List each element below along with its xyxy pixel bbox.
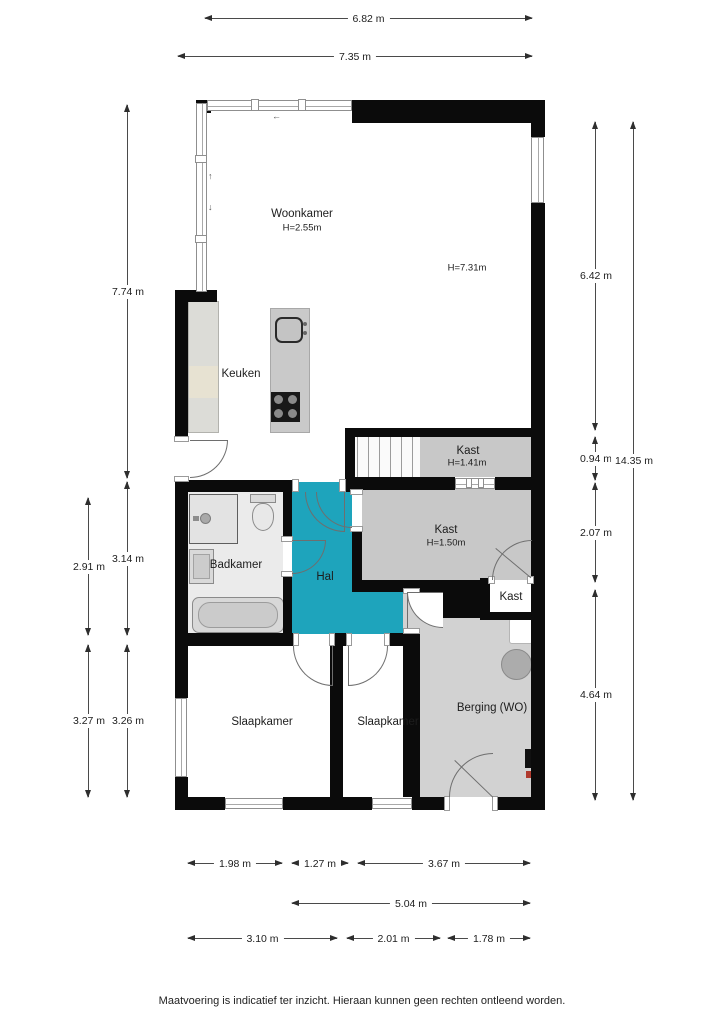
- wall-segment: [175, 478, 188, 698]
- window-frame-mark: [466, 478, 472, 488]
- dim-right-642: 6.42 m: [595, 122, 596, 430]
- door-leaf: [292, 540, 326, 541]
- dim-left-327: 3.27 m: [88, 645, 89, 797]
- ceiling-height-kast-stair: H=1.41m: [448, 458, 487, 469]
- island-sink: [275, 317, 303, 343]
- dim-label: 2.07 m: [576, 526, 616, 540]
- window-frame-mark: [251, 99, 259, 111]
- wall-segment: [352, 100, 545, 123]
- dim-label: 14.35 m: [611, 454, 657, 468]
- dim-label: 3.26 m: [108, 714, 148, 728]
- stair-step: [401, 437, 402, 477]
- dim-label: 7.35 m: [334, 51, 376, 63]
- window: [175, 698, 187, 777]
- dim-label: 5.04 m: [390, 898, 432, 910]
- dim-bottom-127: 1.27 m: [292, 863, 348, 864]
- dim-label: 1.98 m: [214, 858, 256, 870]
- dim-right-1435: 14.35 m: [633, 122, 634, 800]
- dim-label: 3.14 m: [108, 552, 148, 566]
- dim-bottom-198: 1.98 m: [188, 863, 282, 864]
- dim-top-inner: 6.82 m: [205, 18, 532, 19]
- window: [196, 103, 207, 292]
- bathtub-basin: [198, 602, 278, 628]
- window: [207, 100, 352, 111]
- stair-step: [412, 437, 413, 477]
- hal-floor-lower: [290, 590, 403, 637]
- wall-segment: [175, 797, 225, 810]
- wall-segment: [412, 797, 448, 810]
- dim-right-464: 4.64 m: [595, 590, 596, 800]
- wall-segment: [283, 492, 292, 540]
- island-faucet-dot: [303, 331, 307, 335]
- window-frame-mark: [195, 235, 207, 243]
- dim-right-094: 0.94 m: [595, 437, 596, 480]
- room-label-slaapkamer-left: Slaapkamer: [231, 716, 292, 728]
- dim-label: 3.27 m: [69, 714, 109, 728]
- dim-label: 7.74 m: [108, 285, 148, 299]
- dim-left-314: 3.14 m: [127, 482, 128, 635]
- window-frame-mark: [298, 99, 306, 111]
- wall-segment: [175, 633, 295, 646]
- interior-window: [455, 478, 495, 489]
- dim-bottom-367: 3.67 m: [358, 863, 530, 864]
- door-opening: [348, 634, 388, 646]
- room-label-berging: Berging (WO): [457, 702, 527, 714]
- door-jamb: [174, 436, 189, 442]
- shower-head: [200, 513, 211, 524]
- dim-label: 3.67 m: [423, 858, 465, 870]
- wall-segment: [352, 477, 455, 490]
- door-leaf: [407, 592, 408, 628]
- door-jamb: [293, 633, 299, 646]
- cooktop: [271, 392, 300, 422]
- wall-segment: [480, 612, 537, 620]
- burner: [274, 409, 283, 418]
- island-faucet-dot: [303, 322, 307, 326]
- toilet-tank: [250, 494, 276, 503]
- door-jamb: [339, 479, 346, 492]
- stairs-area: [352, 437, 420, 477]
- dim-bottom-310: 3.10 m: [188, 938, 337, 939]
- stair-step: [390, 437, 391, 477]
- dim-label: 4.64 m: [576, 688, 616, 702]
- floorplan-canvas: 6.82 m 7.35 m 7.74 m 3.14 m 2.91 m 3.27 …: [0, 0, 724, 1024]
- door-leaf: [190, 440, 228, 441]
- wall-segment: [352, 580, 490, 592]
- door-jamb: [329, 633, 335, 646]
- shower-knob: [193, 516, 199, 521]
- door-jamb: [174, 476, 189, 482]
- slide-arrow-left-icon: ←: [272, 112, 281, 121]
- stair-step: [357, 437, 358, 477]
- window-frame-mark: [478, 478, 484, 488]
- room-label-kast-main: Kast: [434, 524, 457, 536]
- dim-bottom-504: 5.04 m: [292, 903, 530, 904]
- dim-label: 6.82 m: [347, 13, 389, 25]
- room-label-hal: Hal: [316, 571, 333, 583]
- dim-label: 3.10 m: [241, 933, 283, 945]
- door-opening: [283, 540, 292, 573]
- ceiling-height-note: H=7.31m: [448, 263, 487, 274]
- wall-segment: [352, 428, 532, 437]
- door-opening: [295, 634, 333, 646]
- door-leaf: [348, 646, 349, 686]
- door-opening: [352, 492, 362, 528]
- door-jamb: [384, 633, 390, 646]
- wall-segment: [403, 633, 420, 797]
- wall-segment: [495, 797, 545, 810]
- room-label-woonkamer: Woonkamer: [271, 208, 333, 220]
- stair-step: [368, 437, 369, 477]
- door-jamb: [346, 633, 352, 646]
- wall-segment: [531, 203, 545, 810]
- door-jamb: [444, 796, 450, 811]
- shower: [189, 494, 238, 544]
- ceiling-height-kast-main: H=1.50m: [427, 538, 466, 549]
- dim-right-207: 2.07 m: [595, 483, 596, 582]
- dim-label: 6.42 m: [576, 269, 616, 283]
- door-jamb: [292, 479, 299, 492]
- wall-segment: [531, 123, 545, 137]
- toilet-bowl: [252, 503, 274, 531]
- room-label-slaapkamer-mid: Slaapkamer: [357, 716, 418, 728]
- room-label-kast-stair: Kast: [456, 445, 479, 457]
- dim-left-291: 2.91 m: [88, 498, 89, 635]
- dim-left-774: 7.74 m: [127, 105, 128, 478]
- dim-label: 1.27 m: [299, 858, 341, 870]
- room-label-kast-small: Kast: [499, 591, 522, 603]
- window: [531, 137, 544, 203]
- bathroom-sink-basin: [193, 554, 210, 579]
- room-label-keuken: Keuken: [221, 368, 260, 380]
- bathtub: [192, 597, 284, 633]
- slide-arrow-down-icon: ↓: [208, 203, 213, 212]
- dim-label: 2.01 m: [372, 933, 414, 945]
- burner: [288, 409, 297, 418]
- wall-segment: [283, 797, 372, 810]
- dim-bottom-201: 2.01 m: [347, 938, 440, 939]
- window: [372, 798, 412, 809]
- dim-top-outer: 7.35 m: [178, 56, 532, 57]
- slide-arrow-up-icon: ↑: [208, 172, 213, 181]
- door-jamb: [492, 796, 498, 811]
- room-label-badkamer: Badkamer: [210, 559, 262, 571]
- window: [225, 798, 283, 809]
- dim-label: 1.78 m: [468, 933, 510, 945]
- dim-left-326: 3.26 m: [127, 645, 128, 797]
- ceiling-height-woonkamer: H=2.55m: [283, 223, 322, 234]
- window-frame-mark: [195, 155, 207, 163]
- wall-segment: [495, 477, 532, 490]
- disclaimer-text: Maatvoering is indicatief ter inzicht. H…: [0, 995, 724, 1007]
- kitchen-counter-appliance: [189, 366, 218, 398]
- door-jamb: [403, 628, 420, 634]
- stair-step: [379, 437, 380, 477]
- dim-bottom-178: 1.78 m: [448, 938, 530, 939]
- wall-segment: [175, 290, 188, 440]
- wall-segment: [175, 480, 295, 492]
- dim-label: 2.91 m: [69, 560, 109, 574]
- burner: [274, 395, 283, 404]
- washing-machine: [501, 649, 532, 680]
- door-opening: [175, 440, 188, 478]
- burner: [288, 395, 297, 404]
- door-leaf: [332, 646, 333, 686]
- storage-box: [509, 618, 533, 644]
